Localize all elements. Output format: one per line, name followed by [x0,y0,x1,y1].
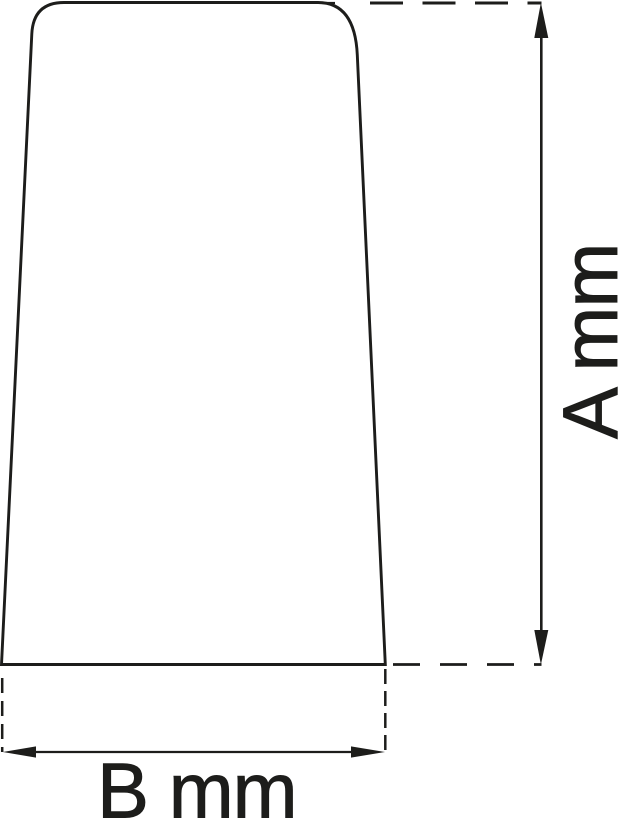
svg-text:A mm: A mm [546,244,634,439]
svg-text:B mm: B mm [97,747,297,835]
